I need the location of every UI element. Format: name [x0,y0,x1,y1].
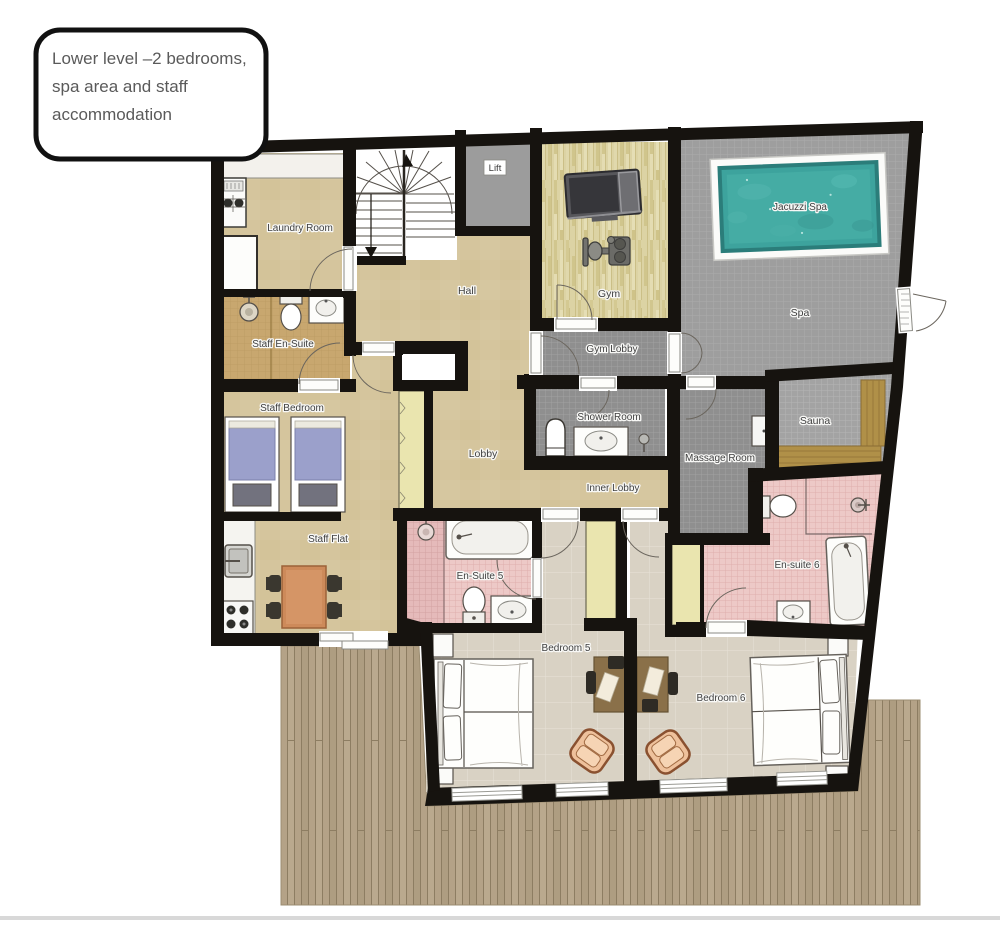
svg-text:spa area and staff: spa area and staff [52,77,188,96]
svg-text:Hall: Hall [458,285,476,297]
svg-text:Bedroom 6: Bedroom 6 [697,693,746,704]
svg-text:Lift: Lift [489,163,502,174]
svg-text:Sauna: Sauna [800,415,831,427]
svg-text:Inner Lobby: Inner Lobby [587,483,640,494]
svg-text:Spa: Spa [791,307,810,319]
svg-text:En-Suite 5: En-Suite 5 [457,571,504,582]
svg-text:Jacuzzi Spa: Jacuzzi Spa [773,202,827,213]
svg-text:Gym: Gym [598,288,620,300]
svg-text:accommodation: accommodation [52,105,172,124]
svg-text:Lower level –2 bedrooms,: Lower level –2 bedrooms, [52,49,247,68]
svg-text:Massage Room: Massage Room [685,453,755,464]
svg-text:Shower Room: Shower Room [577,412,640,423]
svg-text:Staff Bedroom: Staff Bedroom [260,403,324,414]
svg-text:Staff Flat: Staff Flat [308,534,348,545]
svg-text:Staff En-Suite: Staff En-Suite [252,339,314,350]
svg-text:Lobby: Lobby [469,448,498,460]
svg-text:Gym Lobby: Gym Lobby [586,344,637,355]
svg-text:En-suite 6: En-suite 6 [774,560,819,571]
svg-text:Laundry Room: Laundry Room [267,223,333,234]
svg-text:Bedroom 5: Bedroom 5 [542,643,591,654]
